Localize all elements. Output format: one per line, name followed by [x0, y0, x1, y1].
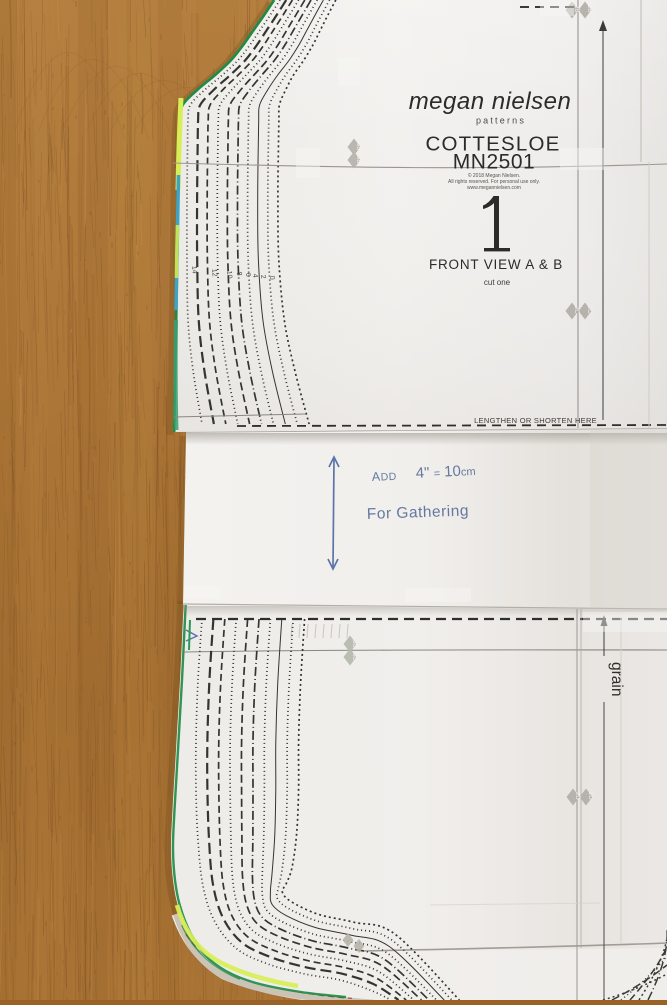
svg-text:3B: 3B — [355, 156, 361, 163]
svg-text:MN2501: MN2501 — [453, 151, 535, 174]
svg-text:2C: 2C — [586, 306, 592, 314]
svg-text:cut one: cut one — [484, 278, 511, 287]
svg-text:10: 10 — [225, 270, 233, 279]
svg-text:ADD: ADD — [371, 469, 397, 484]
svg-text:grain: grain — [608, 662, 625, 696]
svg-text:For Gathering: For Gathering — [367, 502, 470, 523]
svg-text:patterns: patterns — [476, 116, 526, 126]
svg-text:12: 12 — [210, 268, 218, 277]
svg-text:2C: 2C — [573, 306, 579, 314]
svg-text:2B: 2B — [586, 5, 592, 12]
svg-text:megan nielsen: megan nielsen — [409, 88, 572, 115]
svg-text:2D: 2D — [587, 792, 593, 800]
svg-text:3B: 3B — [355, 143, 361, 150]
svg-text:3C: 3C — [351, 653, 357, 661]
svg-text:2D: 2D — [574, 792, 580, 800]
svg-text:FRONT VIEW A & B: FRONT VIEW A & B — [429, 257, 563, 272]
svg-text:www.megannielsen.com: www.megannielsen.com — [467, 185, 521, 191]
svg-text:© 2018 Megan Nielsen.: © 2018 Megan Nielsen. — [468, 172, 520, 179]
svg-text:14: 14 — [190, 265, 198, 274]
svg-text:3C: 3C — [351, 640, 357, 648]
svg-text:LENGTHEN OR SHORTEN HERE: LENGTHEN OR SHORTEN HERE — [474, 416, 597, 425]
